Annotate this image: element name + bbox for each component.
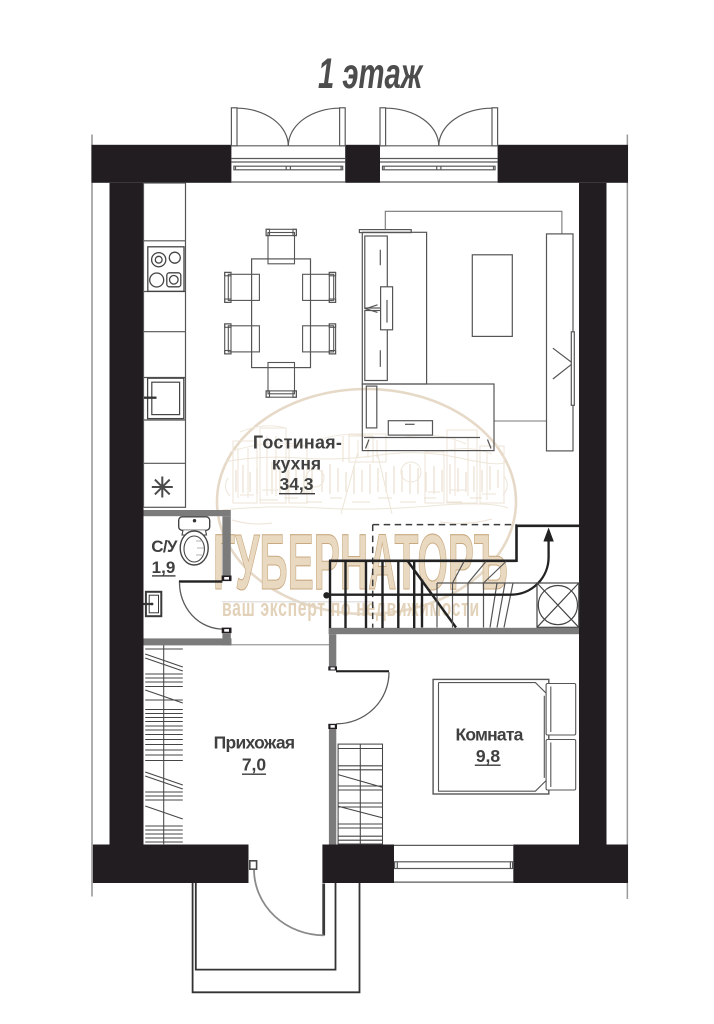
svg-text:9,8: 9,8 [476, 746, 501, 766]
svg-text:кухня: кухня [272, 454, 321, 474]
svg-text:1 этаж: 1 этаж [318, 49, 424, 97]
svg-text:34,3: 34,3 [279, 474, 313, 494]
svg-text:Комната: Комната [455, 725, 523, 745]
svg-text:Прихожая: Прихожая [214, 733, 295, 753]
svg-text:1,9: 1,9 [152, 558, 176, 577]
svg-text:Гостиная-: Гостиная- [253, 433, 342, 453]
svg-text:С/У: С/У [151, 537, 178, 556]
svg-text:7,0: 7,0 [242, 755, 267, 775]
